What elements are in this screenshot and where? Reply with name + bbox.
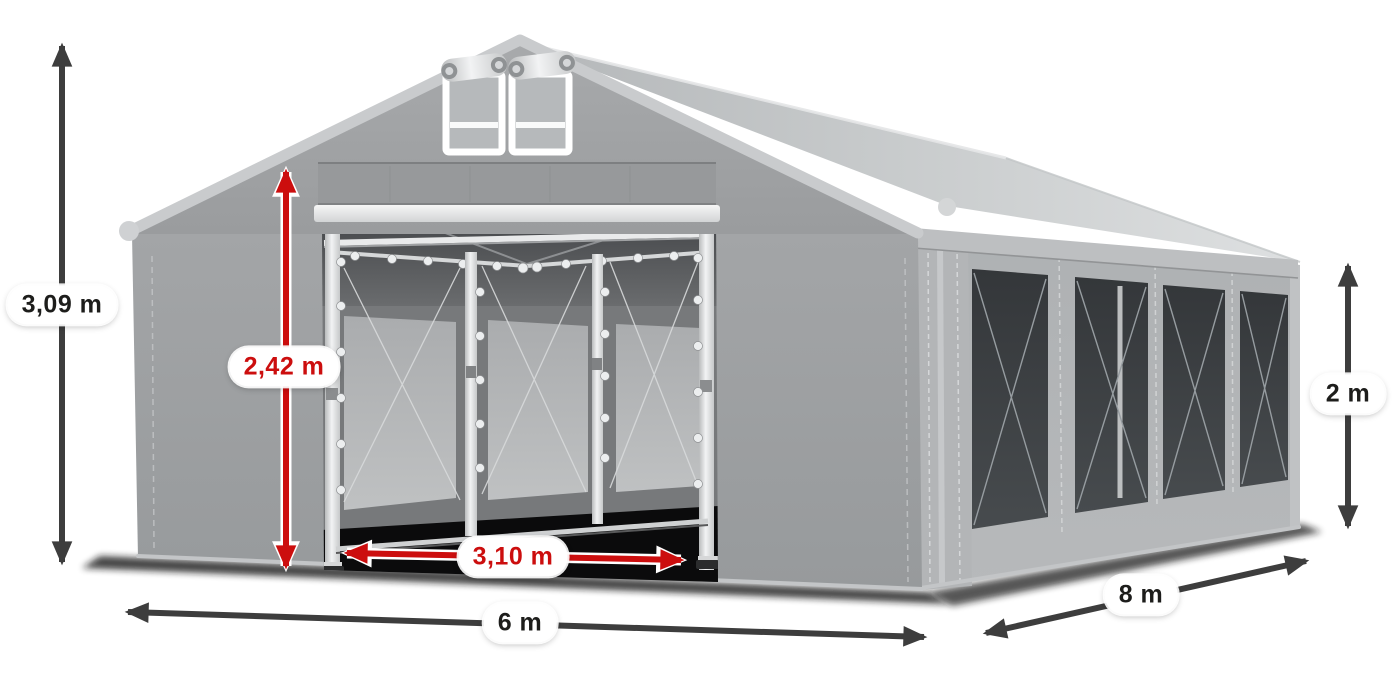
side-window-4 — [1240, 291, 1288, 487]
tent-drawing — [0, 0, 1400, 700]
tent-side-wall — [914, 228, 1300, 590]
gable-vent-windows — [440, 50, 577, 152]
side-window-1 — [972, 269, 1048, 529]
door-width-label: 3,10 m — [459, 537, 568, 576]
vent-window-left — [440, 52, 508, 152]
entrance-top-bar — [314, 205, 720, 222]
side-window-3 — [1163, 285, 1225, 499]
side-wall-height-label: 2 m — [1312, 374, 1385, 413]
total-height-label: 3,09 m — [8, 285, 117, 324]
eave-cap-right — [938, 198, 956, 216]
side-length-label: 8 m — [1105, 575, 1178, 614]
vent-window-right — [507, 50, 577, 152]
side-window-2 — [1075, 277, 1148, 513]
rolled-door-panel — [314, 162, 720, 222]
back-window-2 — [488, 320, 588, 500]
eave-cap-left — [119, 221, 139, 241]
door-height-label: 2,42 m — [230, 347, 339, 386]
rear-corner-column — [1290, 264, 1300, 529]
entrance-interior — [320, 222, 720, 582]
product-dimension-illustration: 3,09 m 2,42 m 3,10 m 6 m 8 m 2 m — [0, 0, 1400, 700]
front-width-label: 6 m — [484, 603, 557, 642]
back-window-1 — [344, 316, 456, 510]
back-window-3 — [616, 324, 700, 492]
